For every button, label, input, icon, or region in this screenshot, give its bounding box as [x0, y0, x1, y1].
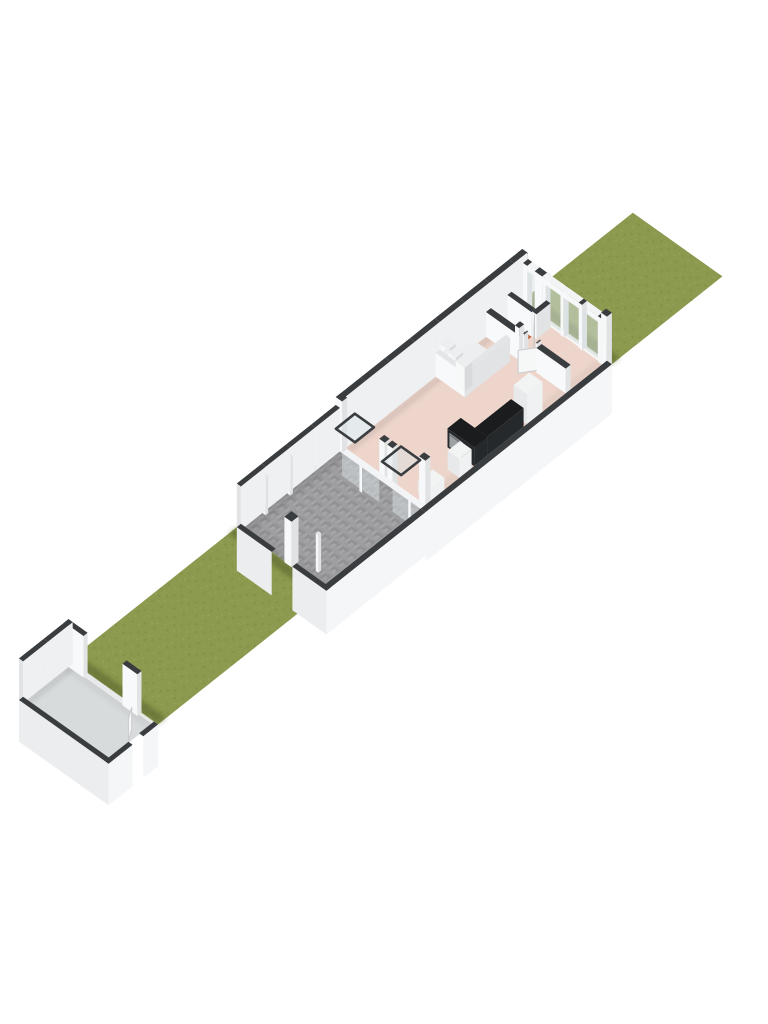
scene-item [456, 355, 473, 391]
ne-facade-corner-pier-se-se [607, 313, 612, 368]
front-post-1 [359, 465, 362, 493]
ne-facade-post-4-sw [598, 316, 601, 364]
ne-facade-post-3-sw [579, 303, 582, 351]
ne-facade-corner-pier-se-sw [601, 313, 607, 369]
wc-door [534, 315, 535, 352]
patio-gate-post-sw [284, 517, 291, 568]
garage-ne-wall-a-end [84, 633, 88, 678]
patio-nw-wall-end [237, 484, 241, 531]
scene-item [601, 309, 612, 369]
scene-item [316, 531, 321, 573]
floorplan-3d-render [0, 0, 768, 1024]
scene-item [534, 315, 535, 352]
scene-item [359, 465, 362, 493]
floorplan-page [0, 0, 768, 1024]
patio-fence-post-3-sw [316, 533, 319, 573]
hall-wall-b-se [566, 365, 571, 394]
patio-fence-post-3-se [318, 533, 321, 573]
garage-ne-wall-b-end [137, 671, 141, 716]
patio-fence-post-2-se [290, 456, 293, 496]
scene-item [518, 347, 538, 373]
patio-fence-post-1-se [266, 476, 269, 516]
garage-nw-wall-end [19, 658, 23, 703]
floorplan-figure [0, 0, 768, 1024]
patio-gate-post-se [292, 516, 299, 567]
living-room-door [518, 347, 538, 373]
scene-item [515, 321, 524, 353]
wc-wall-a-sw [515, 325, 519, 353]
scene-item [284, 511, 298, 567]
